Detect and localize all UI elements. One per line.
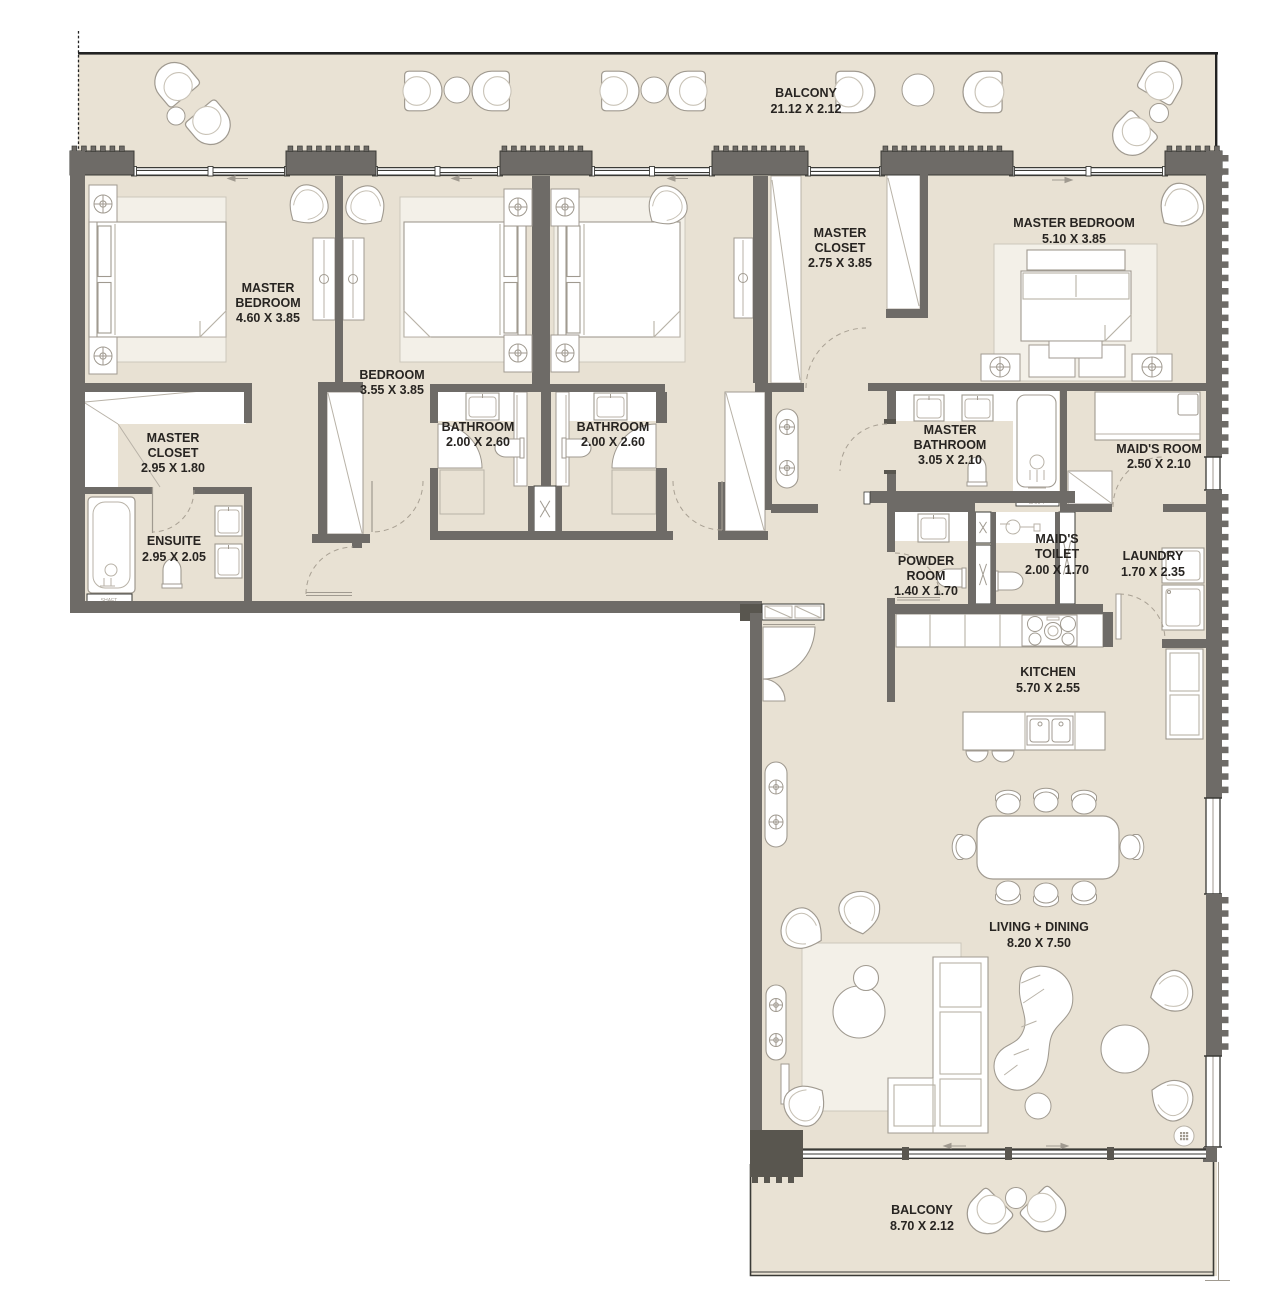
svg-text:2.00 X 2.60: 2.00 X 2.60 [581, 435, 645, 449]
svg-text:KITCHEN: KITCHEN [1020, 665, 1076, 679]
svg-text:21.12 X 2.12: 21.12 X 2.12 [771, 102, 842, 116]
svg-text:2.00 X 2.60: 2.00 X 2.60 [446, 435, 510, 449]
svg-text:5.10 X 3.85: 5.10 X 3.85 [1042, 232, 1106, 246]
svg-text:BATHROOM: BATHROOM [914, 438, 987, 452]
svg-text:CLOSET: CLOSET [815, 241, 866, 255]
svg-text:ROOM: ROOM [907, 569, 946, 583]
svg-text:TOILET: TOILET [1035, 547, 1080, 561]
svg-text:2.95 X 1.80: 2.95 X 1.80 [141, 461, 205, 475]
svg-text:MAID'S ROOM: MAID'S ROOM [1116, 442, 1202, 456]
svg-text:CLOSET: CLOSET [148, 446, 199, 460]
svg-text:3.55 X 3.85: 3.55 X 3.85 [360, 383, 424, 397]
svg-text:BEDROOM: BEDROOM [235, 296, 300, 310]
svg-text:2.00 X 1.70: 2.00 X 1.70 [1025, 563, 1089, 577]
svg-text:8.70 X 2.12: 8.70 X 2.12 [890, 1219, 954, 1233]
svg-text:POWDER: POWDER [898, 554, 954, 568]
svg-text:MASTER: MASTER [924, 423, 977, 437]
svg-text:8.20 X 7.50: 8.20 X 7.50 [1007, 936, 1071, 950]
svg-text:BALCONY: BALCONY [775, 86, 837, 100]
svg-text:BATHROOM: BATHROOM [442, 420, 515, 434]
svg-text:BALCONY: BALCONY [891, 1203, 953, 1217]
svg-text:MASTER BEDROOM: MASTER BEDROOM [1013, 216, 1135, 230]
svg-text:2.50 X 2.10: 2.50 X 2.10 [1127, 457, 1191, 471]
svg-text:MASTER: MASTER [814, 226, 867, 240]
svg-text:BEDROOM: BEDROOM [359, 368, 424, 382]
svg-text:MASTER: MASTER [147, 431, 200, 445]
svg-text:MAID'S: MAID'S [1035, 532, 1078, 546]
svg-text:LAUNDRY: LAUNDRY [1123, 549, 1184, 563]
svg-text:MASTER: MASTER [242, 281, 295, 295]
svg-text:2.95 X 2.05: 2.95 X 2.05 [142, 550, 206, 564]
svg-text:ENSUITE: ENSUITE [147, 534, 201, 548]
svg-text:3.05 X 2.10: 3.05 X 2.10 [918, 453, 982, 467]
svg-text:1.40 X 1.70: 1.40 X 1.70 [894, 584, 958, 598]
svg-text:2.75 X 3.85: 2.75 X 3.85 [808, 256, 872, 270]
svg-text:5.70 X 2.55: 5.70 X 2.55 [1016, 681, 1080, 695]
svg-text:LIVING + DINING: LIVING + DINING [989, 920, 1089, 934]
svg-text:1.70 X 2.35: 1.70 X 2.35 [1121, 565, 1185, 579]
svg-text:BATHROOM: BATHROOM [577, 420, 650, 434]
svg-text:4.60 X 3.85: 4.60 X 3.85 [236, 311, 300, 325]
